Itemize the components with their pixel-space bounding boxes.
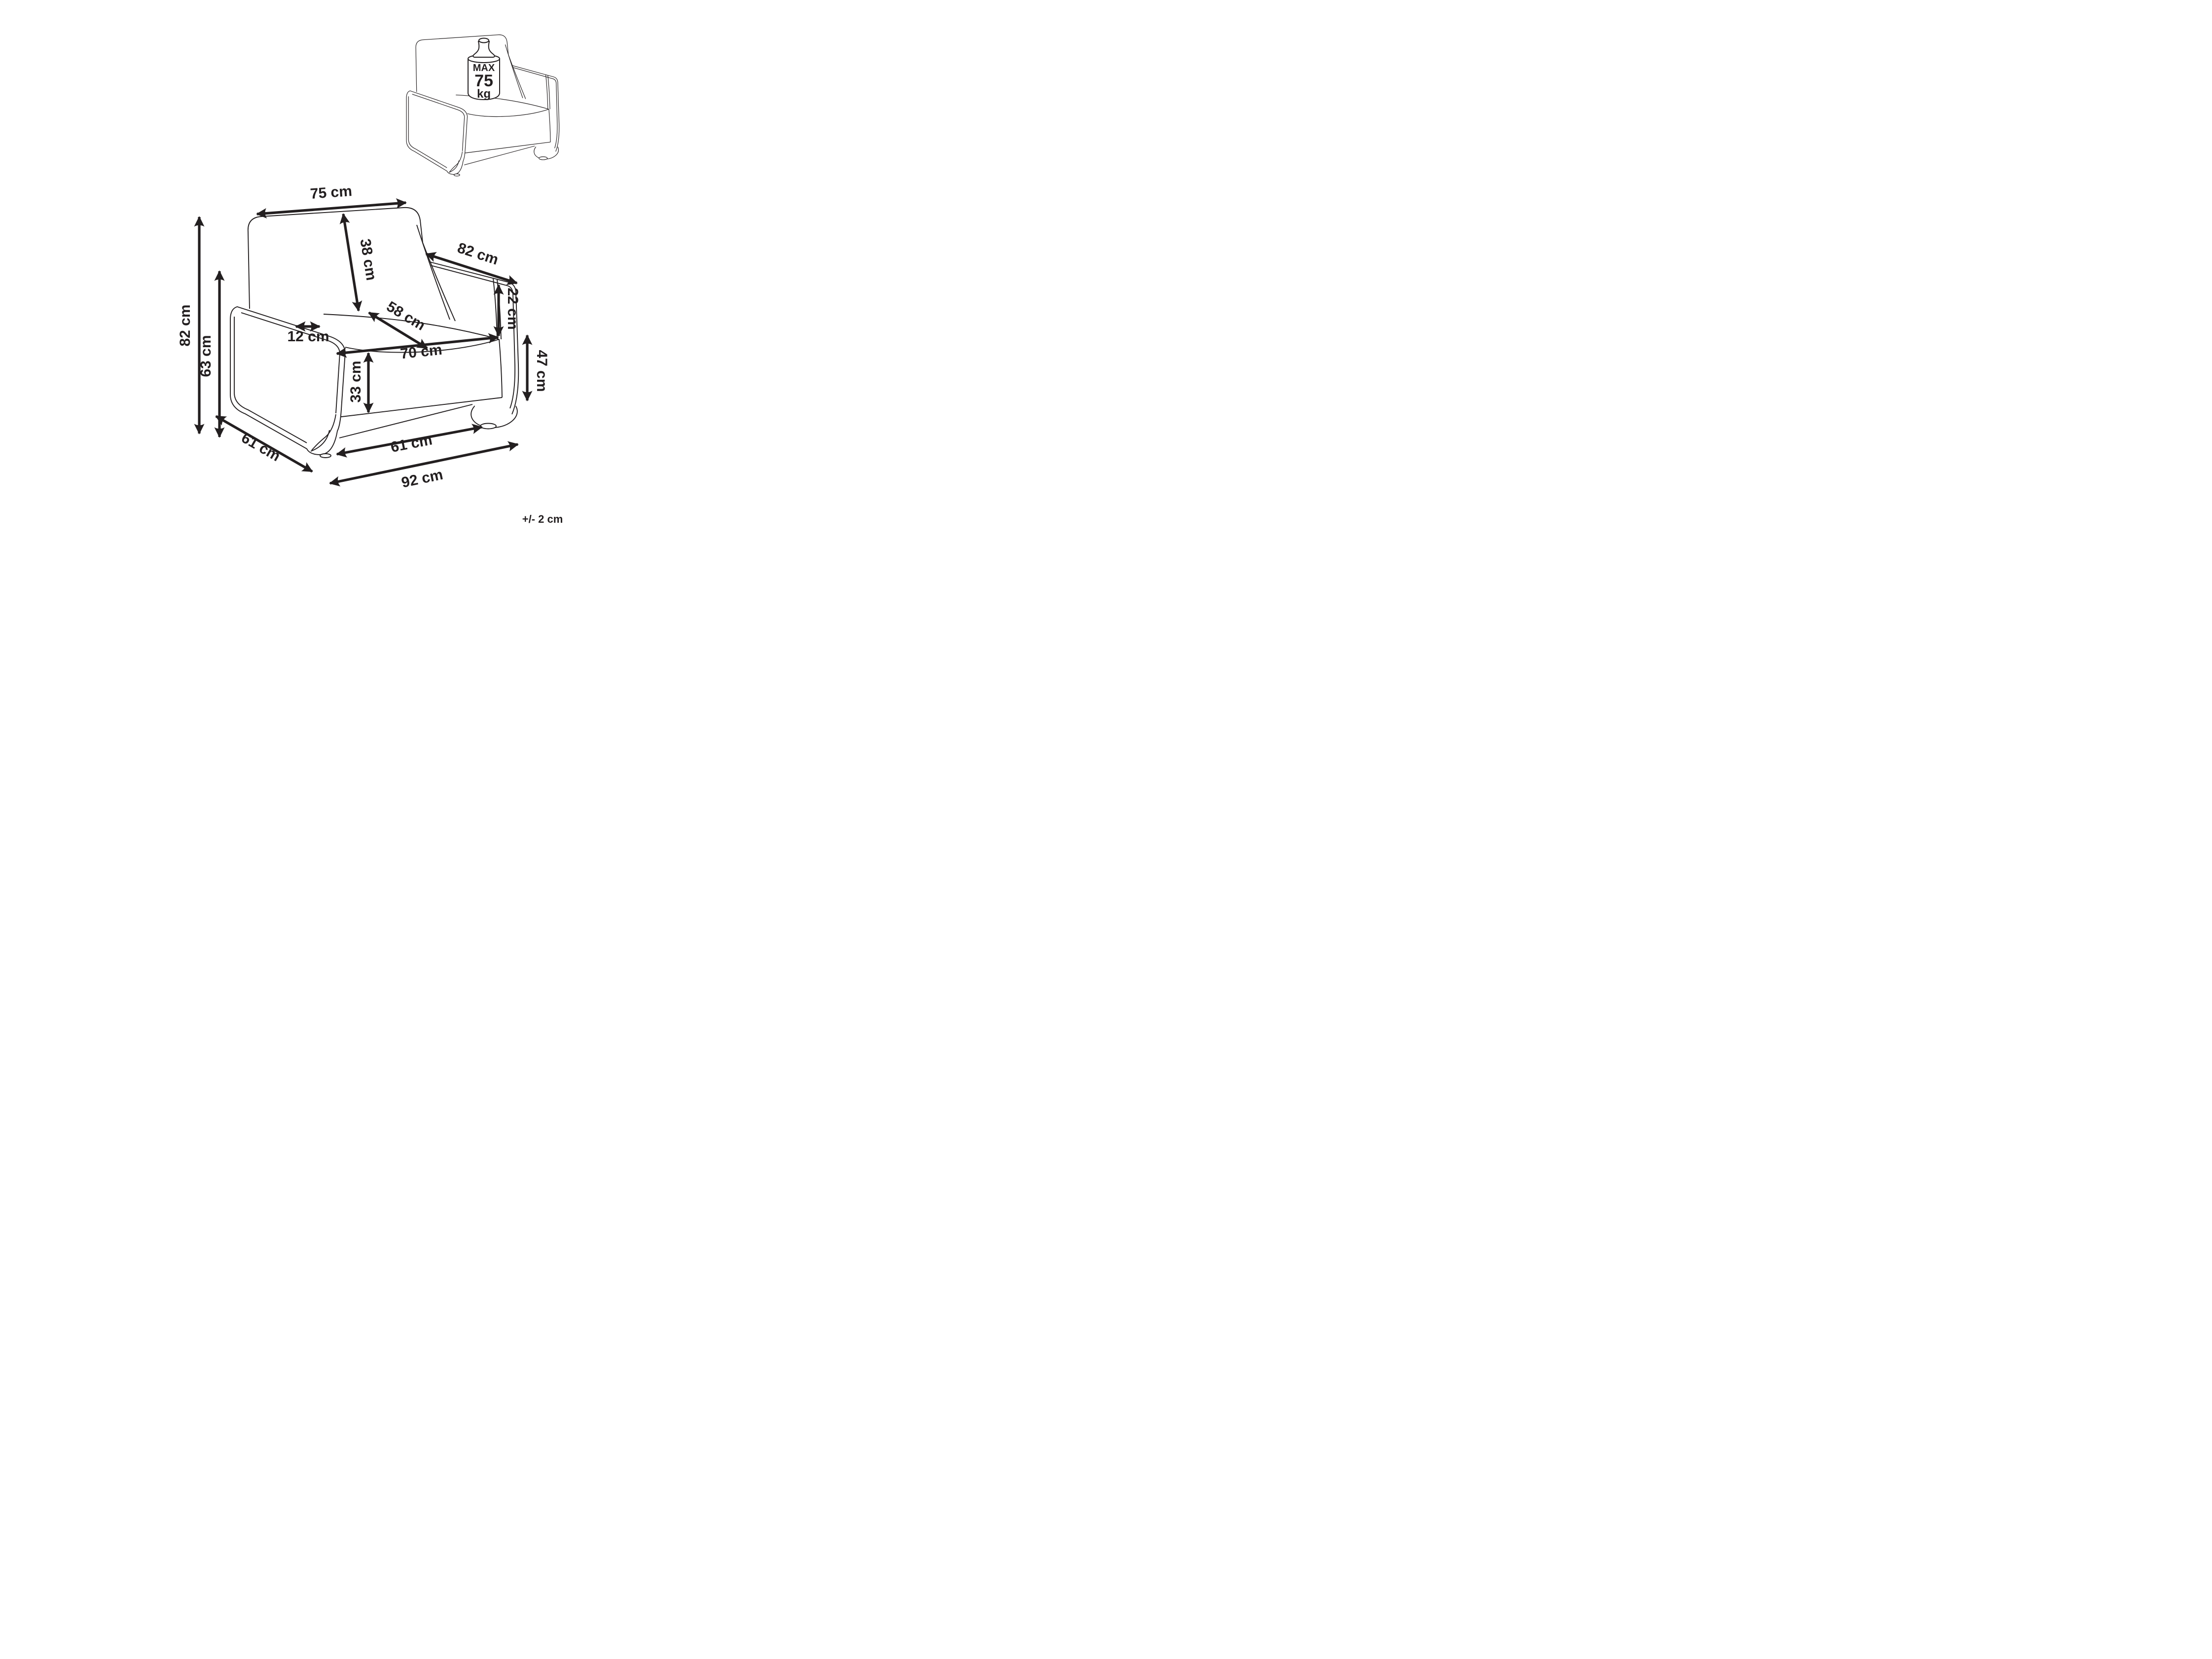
dim-label-armrest-length: 82 cm — [455, 240, 500, 268]
weight-knob — [479, 38, 489, 43]
max-load-unit: kg — [477, 87, 491, 101]
dim-label-arm-front-height: 47 cm — [534, 350, 550, 392]
dim-label-arm-height: 63 cm — [198, 335, 214, 377]
dim-label-armrest-thickness: 12 cm — [287, 328, 329, 345]
dim-label-back-width: 75 cm — [310, 183, 353, 202]
dim-label-side-depth: 61 cm — [239, 430, 283, 465]
tolerance-note: +/- 2 cm — [522, 513, 563, 525]
dim-label-total-width: 92 cm — [400, 467, 444, 491]
dim-label-seat-front-height: 33 cm — [348, 361, 364, 402]
dim-label-backrest-above-arm: 22 cm — [505, 288, 521, 329]
dim-label-feet-span: 61 cm — [389, 432, 434, 456]
dim-label-total-height: 82 cm — [177, 304, 193, 346]
dimension-diagram: MAX 75 kg 75 cm 38 cm 82 cm 22 cm 58 cm … — [0, 0, 737, 553]
